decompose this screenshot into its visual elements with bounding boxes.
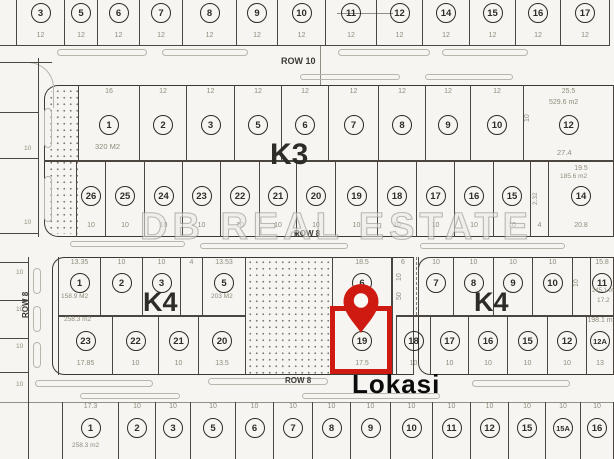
lot-number: 18	[404, 331, 424, 351]
dimension-label: 12	[516, 32, 560, 39]
lot-number: 6	[295, 115, 315, 135]
lot-number: 21	[268, 186, 288, 206]
k4-right-bottom-row-lot-cell: 12A198.1 m13	[586, 315, 614, 375]
curb-line	[33, 306, 41, 332]
k4-right-bottom-row-lot-cell: 1610	[468, 315, 507, 375]
lot-number: 10	[487, 115, 507, 135]
dimension-label: 10	[236, 403, 273, 410]
lot-number: 8	[200, 3, 220, 23]
lot-number: 5	[248, 115, 268, 135]
dimension-label: 13.53	[203, 259, 245, 266]
dimension-label: 20.8	[549, 222, 613, 229]
dimension-label: 10	[524, 114, 531, 122]
area-label: 529.6 m2	[549, 99, 578, 106]
dimension-label: 10	[101, 259, 142, 266]
dimension-label: 18.5	[333, 259, 391, 266]
site-plan-map: DB REAL ESTATE 3125126127128129121012111…	[0, 0, 614, 459]
lot-number: 11	[341, 3, 361, 23]
map-pin-icon	[338, 280, 384, 336]
bottom-row-lots-lot-cell	[28, 402, 62, 459]
dimension-label: 17.3	[63, 403, 118, 410]
bottom-row-lots-lot-cell: 510	[190, 402, 235, 459]
dimension-label: 2.32	[533, 192, 540, 205]
lot-number: 14	[436, 3, 456, 23]
lot-number: 9	[247, 3, 267, 23]
curb-line	[35, 380, 153, 387]
block-k3-label: K3	[270, 140, 308, 170]
dimension-label: 10	[508, 360, 547, 367]
dimension-label: 10	[16, 344, 23, 351]
k4-right-top-row-lot-cell: 710	[418, 257, 453, 315]
lot-number: 24	[154, 186, 174, 206]
dimension-label: 10	[573, 279, 580, 287]
dimension-label: 17.2	[597, 298, 610, 305]
top-row-lots-lot-cell: 712	[139, 0, 182, 46]
lot-number: 7	[344, 115, 364, 135]
dimension-label: 10	[113, 360, 158, 367]
top-row-lots-lot-cell: 1212	[376, 0, 422, 46]
dimension-label: 10	[16, 382, 23, 389]
dimension-label: 17.85	[59, 360, 112, 367]
dimension-label: 12	[423, 32, 469, 39]
lot-number: 26	[81, 186, 101, 206]
curb-line	[442, 49, 528, 56]
dimension-label: 12	[187, 88, 234, 95]
lot-number: 8	[392, 115, 412, 135]
lot-number: 25	[115, 186, 135, 206]
road-corner-curb	[14, 62, 54, 108]
lot-number: 15	[518, 331, 538, 351]
bottom-row-lots-lot-cell: 1210	[470, 402, 508, 459]
dimension-label: 198.1 m	[587, 317, 613, 324]
dimension-label: 10	[397, 360, 430, 367]
k3-top-row-lot-cell: 1012	[470, 85, 523, 160]
k3-top-row-lot-cell: 212	[139, 85, 186, 160]
lot-number: 22	[230, 186, 250, 206]
dimension-label: 12	[329, 88, 378, 95]
boundary-line	[0, 112, 38, 113]
bottom-row-lots-lot-cell: 310	[155, 402, 190, 459]
dimension-label: 10	[419, 259, 453, 266]
k3-top-row-lot-cell: 812	[378, 85, 425, 160]
curb-line	[162, 49, 248, 56]
top-row-lots-lot-cell: 912	[236, 0, 277, 46]
dimension-label: 12	[17, 32, 64, 39]
area-label: 203 M2	[211, 294, 233, 301]
lot-number: 2	[112, 273, 132, 293]
bottom-row-lots-lot-cell: 1010	[390, 402, 432, 459]
curb-line	[338, 49, 430, 56]
lot-number: 10	[402, 418, 422, 438]
top-row-lots-lot-cell: 1612	[515, 0, 560, 46]
block-k4-right-label: K4	[474, 289, 509, 316]
lot-number: 23	[192, 186, 212, 206]
lot-number: 1	[81, 418, 101, 438]
bottom-row-lots-lot-cell: 610	[235, 402, 273, 459]
k4-left-bottom-row-lot-cell: 2317.85	[58, 315, 112, 375]
dimension-label: 16	[79, 88, 139, 95]
dimension-label: 10	[191, 403, 235, 410]
lot-number: 16	[587, 418, 607, 438]
lot-number: 3	[201, 115, 221, 135]
curb-line	[80, 393, 180, 399]
lot-number: 1	[99, 115, 119, 135]
lot-number: 6	[245, 418, 265, 438]
bottom-row-lots-lot-cell: 210	[118, 402, 155, 459]
dimension-label: 19.5	[549, 165, 613, 172]
lot-number: 5	[203, 418, 223, 438]
location-label: Lokasi	[352, 371, 440, 397]
dimension-label: 10	[581, 403, 613, 410]
lot-number: 17	[575, 3, 595, 23]
dimension-label: 12	[326, 32, 376, 39]
boundary-line	[0, 372, 28, 373]
k4-right-bottom-row-lot-cell: 1210	[547, 315, 586, 375]
lot-number: 18	[387, 186, 407, 206]
k4-left-bottom-row-lot-cell: 2013.5	[198, 315, 246, 375]
dimension-label: 13	[587, 360, 613, 367]
lot-number: 14	[571, 186, 591, 206]
dimension-label: 10	[16, 307, 23, 314]
dimension-label: 10	[24, 220, 31, 227]
dimension-label: 10	[469, 360, 507, 367]
lot-number: 7	[151, 3, 171, 23]
lot-number: 22	[126, 331, 146, 351]
dimension-label: 12	[379, 88, 425, 95]
top-row-lots-lot-cell: 1712	[560, 0, 610, 46]
curb-line	[44, 108, 52, 148]
k4-left-top-row-lot-cell: 210	[100, 257, 142, 315]
lot-number: 1	[70, 273, 90, 293]
dimension-label: 4	[181, 259, 202, 266]
lot-number: 12A	[590, 331, 610, 351]
top-row-lots-lot-cell: 1012	[277, 0, 325, 46]
lot-number: 5	[214, 273, 234, 293]
dimension-label: 12	[183, 32, 236, 39]
dimension-label: 10	[274, 403, 312, 410]
lot-number: 3	[31, 3, 51, 23]
curb-line	[33, 268, 41, 294]
lot-number: 16	[478, 331, 498, 351]
dimension-label: 12	[470, 32, 515, 39]
curb-line	[44, 176, 52, 222]
top-row-lots-lot-cell: 612	[97, 0, 139, 46]
area-label: 258.3 m2	[64, 317, 91, 324]
lot-number: 2	[153, 115, 173, 135]
lot-number: 19	[347, 186, 367, 206]
lot-number: 16	[464, 186, 484, 206]
dimension-label: 25.5	[524, 88, 613, 95]
lot-number: 10	[292, 3, 312, 23]
lot-number: 10	[543, 273, 563, 293]
dimension-label: 10	[509, 403, 545, 410]
boundary-line	[0, 338, 28, 339]
dimension-label: 10	[119, 403, 155, 410]
k4-left-bottom-row-lot-cell: 2210	[112, 315, 158, 375]
area-label: 320 M2	[95, 143, 120, 151]
lot-number: 12	[390, 3, 410, 23]
dimension-label: 10	[77, 222, 105, 229]
curb-line	[57, 49, 147, 56]
dimension-label: 12	[235, 88, 281, 95]
dimension-label: 10	[548, 360, 586, 367]
lot-number: 9	[438, 115, 458, 135]
k3-top-row-lot-cell: 712	[328, 85, 378, 160]
dimension-label: 10	[351, 403, 390, 410]
dimension-label: 13.35	[59, 259, 100, 266]
top-row-lots-lot-cell: 1412	[422, 0, 469, 46]
dimension-label: 12	[561, 32, 609, 39]
lot-number: 15	[517, 418, 537, 438]
dimension-label: 15.8	[591, 259, 613, 266]
k4-left-top-row-lot-cell: 4	[180, 257, 202, 315]
lot-number: 9	[361, 418, 381, 438]
lot-number: 17	[440, 331, 460, 351]
lot-number: 2	[127, 418, 147, 438]
dimension-label: 27.4	[557, 149, 572, 157]
dimension-label: 4	[531, 222, 548, 229]
lot-number: 23	[76, 331, 96, 351]
lot-number: 12	[480, 418, 500, 438]
dimension-label: 10	[533, 259, 572, 266]
k4-right-top-row-lot-cell: 1115.8	[590, 257, 614, 315]
row-10-label: ROW 10	[281, 57, 316, 66]
bottom-row-lots-lot-cell: 15A10	[545, 402, 580, 459]
dimension-label: 10	[431, 360, 468, 367]
row-8-bottom-label: ROW 8	[285, 377, 311, 385]
watermark: DB REAL ESTATE	[140, 206, 533, 249]
lot-number: 12	[557, 331, 577, 351]
top-row-lots-lot-cell: 812	[182, 0, 236, 46]
bottom-row-lots-lot-cell: 1110	[432, 402, 470, 459]
dimension-label: 10	[16, 270, 23, 277]
lot-number: 15	[483, 3, 503, 23]
k4-right-top-row-lot-cell: 1010	[532, 257, 572, 315]
dimension-label: 13.5	[199, 360, 245, 367]
bottom-row-lots-lot-cell: 117.3	[62, 402, 118, 459]
k4-left-top-row-lot-cell: 113.35	[58, 257, 100, 315]
lot-number: 8	[322, 418, 342, 438]
top-row-lots-lot-cell: 312	[16, 0, 64, 46]
curb-line	[425, 74, 513, 80]
boundary-line	[0, 233, 38, 234]
dimension-label: 10	[143, 259, 180, 266]
top-row-lots-lot-cell: 1112	[325, 0, 376, 46]
boundary-line	[0, 158, 38, 159]
area-label: 185.6 m2	[560, 174, 587, 181]
dimension-label: 10	[391, 403, 432, 410]
dimension-label: 10	[546, 403, 580, 410]
dimension-label: 12	[140, 32, 182, 39]
lot-number: 17	[426, 186, 446, 206]
k4-right-bottom-row-lot-cell: 1510	[507, 315, 547, 375]
lot-number: 21	[169, 331, 189, 351]
boundary-line	[38, 58, 39, 237]
lot-number: 16	[528, 3, 548, 23]
top-row-lots-lot-cell: 512	[64, 0, 97, 46]
area-label: 258.3 m2	[72, 443, 99, 450]
bottom-row-lots-lot-cell: 810	[312, 402, 350, 459]
k4-left-top-row-lot-cell: 513.53	[202, 257, 246, 315]
area-label: 158.9 M2	[61, 294, 88, 301]
dimension-label: 12	[471, 88, 523, 95]
area-label: 245.1 m2	[592, 288, 614, 294]
boundary-line	[0, 262, 28, 263]
lot-number: 7	[426, 273, 446, 293]
curb-line	[33, 342, 41, 368]
dimension-label: 12	[237, 32, 277, 39]
lot-number: 12	[559, 115, 579, 135]
dimension-label: 10	[494, 259, 532, 266]
dimension-label: 10	[433, 403, 470, 410]
top-row-lots-lot-cell: 1512	[469, 0, 515, 46]
lot-number: 15A	[553, 418, 573, 438]
k4-left-bottom-row-lot-cell: 2110	[158, 315, 198, 375]
k4-right-bottom-row-lot-cell: 1710	[430, 315, 468, 375]
curb-line	[472, 380, 570, 387]
dimension-label: 10	[159, 360, 198, 367]
dimension-label: 12	[377, 32, 422, 39]
dimension-label: 10	[471, 403, 508, 410]
bottom-row-lots-lot-cell: 710	[273, 402, 312, 459]
boundary-line	[416, 257, 417, 315]
lot-number: 6	[109, 3, 129, 23]
boundary-line	[0, 62, 52, 63]
k3-top-row-lot-cell: 912	[425, 85, 470, 160]
k4-right-bottom-row-lot-cell: 1810	[396, 315, 430, 375]
lot-number: 20	[306, 186, 326, 206]
dimension-label: 12	[140, 88, 186, 95]
dimension-label: 10	[396, 273, 403, 281]
block-k4-left-label: K4	[143, 289, 178, 316]
dimension-label: 50	[396, 292, 403, 300]
lot-number: 20	[212, 331, 232, 351]
k3-bottom-row-lot-cell: 2610	[76, 162, 105, 237]
dimension-label: 12	[282, 88, 328, 95]
dimension-label: 10	[313, 403, 350, 410]
dimension-label: 10	[24, 146, 31, 153]
lot-number: 15	[502, 186, 522, 206]
dimension-label: 12	[426, 88, 470, 95]
bottom-row-lots-lot-cell: 1510	[508, 402, 545, 459]
dimension-label: 12	[65, 32, 97, 39]
lot-number: 3	[163, 418, 183, 438]
dimension-label: 10	[454, 259, 493, 266]
curb-line	[300, 74, 400, 80]
dimension-label: 6	[393, 259, 413, 266]
lot-number: 11	[442, 418, 462, 438]
bottom-row-lots-lot-cell: 910	[350, 402, 390, 459]
dimension-label: 10	[156, 403, 190, 410]
k3-top-row-lot-cell: 312	[186, 85, 234, 160]
bottom-row-lots-lot-cell: 1610	[580, 402, 614, 459]
k3-bottom-row-lot-cell: 2510	[105, 162, 144, 237]
lot-number: 7	[283, 418, 303, 438]
dimension-label: 10	[106, 222, 144, 229]
row-8-left-label: ROW 8	[22, 292, 30, 318]
dimension-label: 12	[278, 32, 325, 39]
dimension-label: 12	[98, 32, 139, 39]
lot-number: 5	[71, 3, 91, 23]
